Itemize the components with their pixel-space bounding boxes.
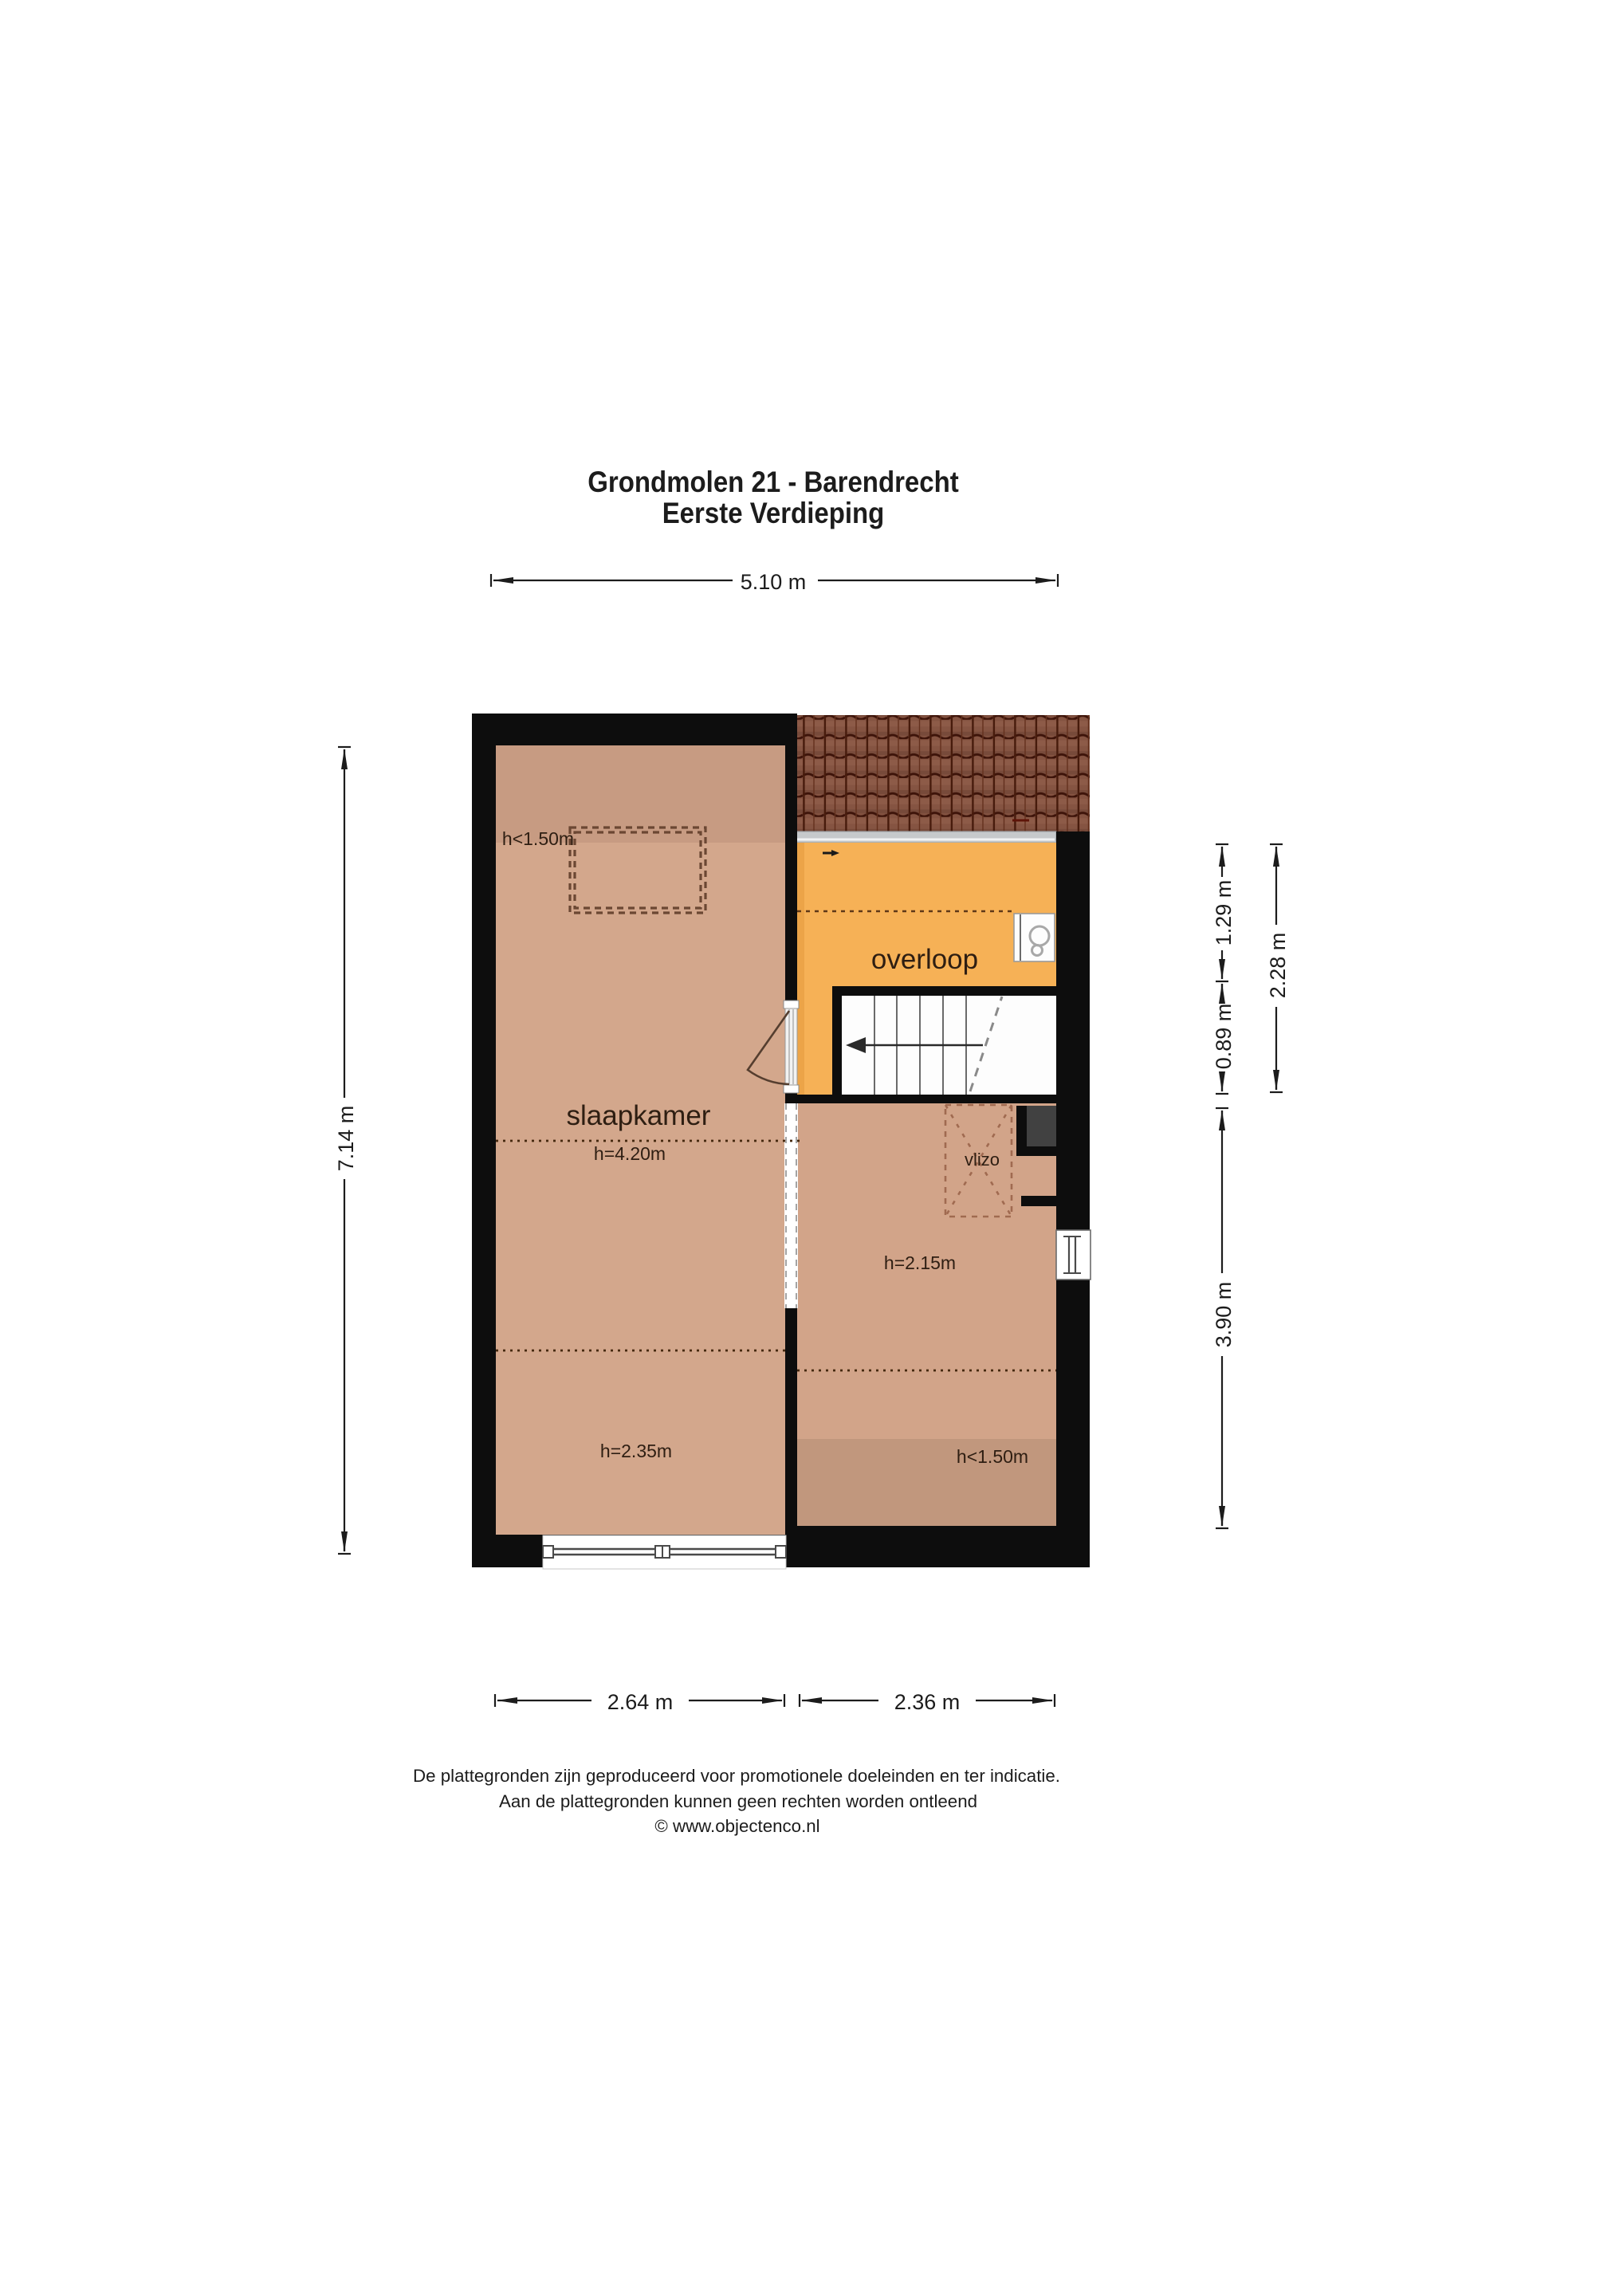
svg-text:vlizo: vlizo (965, 1150, 1000, 1170)
svg-text:slaapkamer: slaapkamer (567, 1100, 711, 1131)
svg-text:2.28 m: 2.28 m (1266, 933, 1290, 999)
svg-text:© www.objectenco.nl: © www.objectenco.nl (654, 1816, 819, 1836)
svg-text:7.14 m: 7.14 m (334, 1106, 358, 1172)
svg-text:Aan de plattegronden kunnen ge: Aan de plattegronden kunnen geen rechten… (499, 1791, 977, 1811)
svg-text:3.90 m: 3.90 m (1212, 1282, 1236, 1348)
svg-text:h=2.35m: h=2.35m (600, 1441, 672, 1461)
svg-text:h<1.50m: h<1.50m (502, 828, 574, 849)
svg-text:0.89 m: 0.89 m (1212, 1004, 1236, 1070)
svg-text:Grondmolen 21 - Barendrecht: Grondmolen 21 - Barendrecht (588, 466, 959, 498)
svg-text:1.29 m: 1.29 m (1212, 880, 1236, 946)
svg-text:h=2.15m: h=2.15m (884, 1252, 956, 1273)
svg-text:h=4.20m: h=4.20m (594, 1143, 666, 1164)
svg-text:overloop: overloop (871, 944, 978, 975)
svg-text:Eerste Verdieping: Eerste Verdieping (662, 497, 885, 529)
svg-text:5.10 m: 5.10 m (741, 570, 807, 594)
svg-text:h<1.50m: h<1.50m (957, 1446, 1028, 1467)
svg-text:De plattegronden zijn geproduc: De plattegronden zijn geproduceerd voor … (413, 1766, 1060, 1786)
svg-text:2.64 m: 2.64 m (607, 1690, 674, 1714)
svg-text:2.36 m: 2.36 m (894, 1690, 961, 1714)
